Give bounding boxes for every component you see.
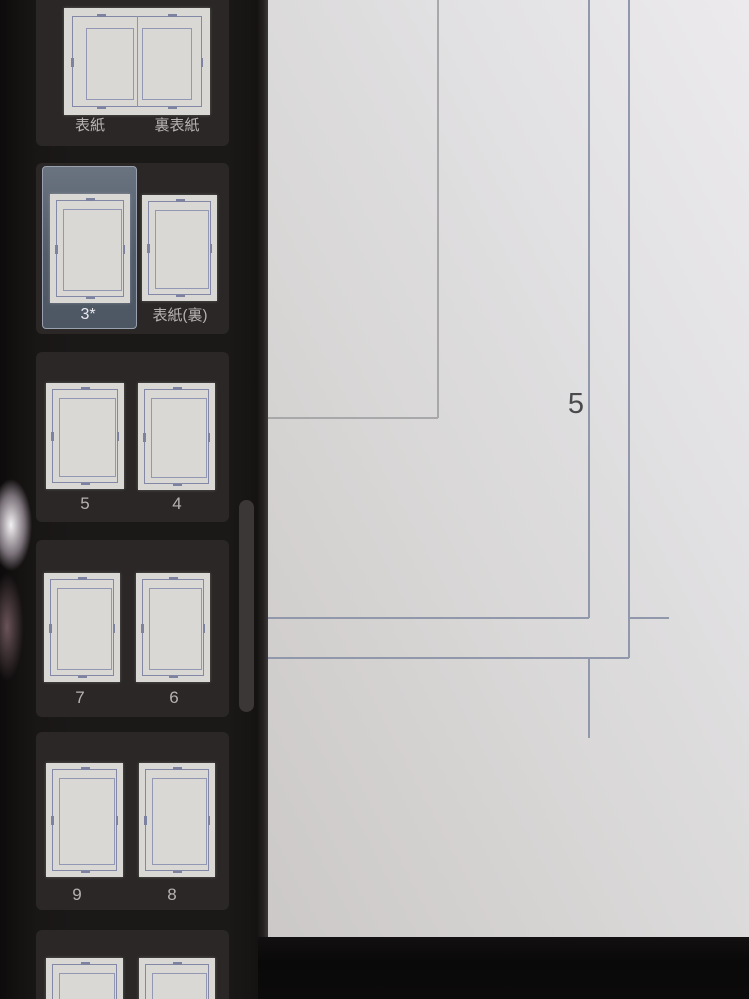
thumb-page-8[interactable]: [139, 763, 215, 877]
pages-panel: 表紙 裏表紙 3* 表紙(裏) 5 4: [0, 0, 258, 999]
thumb-page-9[interactable]: [46, 763, 123, 877]
page-label: 表紙: [45, 115, 135, 137]
page-number-text: 5: [554, 389, 584, 419]
margin-box-back-cover: [142, 28, 192, 100]
thumb-page-next-right[interactable]: [139, 958, 215, 999]
margin-box-front-cover: [86, 28, 134, 100]
page-edge-bottom: [268, 657, 629, 659]
page-label: 8: [127, 884, 217, 906]
guide-bottom-margin-extension: [629, 617, 669, 619]
page-label: 6: [129, 687, 219, 709]
page-label: 7: [35, 687, 125, 709]
guide-bottom-margin: [268, 617, 589, 619]
panel-canvas-divider: [258, 0, 268, 937]
margin-box: [59, 778, 115, 865]
margin-box: [59, 973, 115, 999]
app-screen: 5 表紙 裏表紙: [0, 0, 749, 999]
text-frame-bottom-edge: [268, 417, 438, 419]
margin-box: [59, 398, 116, 477]
text-frame-right-edge: [437, 0, 439, 418]
page-label: 5: [40, 493, 130, 515]
page-label: 裏表紙: [132, 115, 222, 137]
margin-box: [152, 973, 207, 999]
crop-tick: [97, 14, 106, 17]
page-label: 4: [132, 493, 222, 515]
page-label-selected: 3*: [43, 304, 133, 326]
thumb-page-4[interactable]: [138, 383, 215, 490]
thumb-page-next-left[interactable]: [46, 958, 123, 999]
thumb-page-5[interactable]: [46, 383, 124, 489]
margin-box: [149, 588, 202, 670]
canvas-area[interactable]: 5: [258, 0, 749, 937]
page-label: 9: [32, 884, 122, 906]
pages-panel-scrollbar[interactable]: [239, 500, 254, 712]
page-label: 表紙(裏): [135, 305, 225, 327]
thumb-page-6[interactable]: [136, 573, 210, 682]
guide-right-margin: [588, 0, 590, 618]
thumb-cover-spread[interactable]: [64, 8, 210, 115]
bottom-bar: [258, 937, 749, 999]
crop-tick: [168, 107, 177, 110]
crop-tick: [168, 14, 177, 17]
margin-box: [63, 209, 122, 291]
margin-box: [57, 588, 112, 670]
thumb-page-7[interactable]: [44, 573, 120, 682]
thumb-page-3[interactable]: [50, 194, 130, 303]
margin-box: [155, 210, 209, 289]
margin-box: [152, 778, 207, 865]
guide-right-margin-extension: [588, 658, 590, 738]
panel-left-bezel: [0, 0, 38, 999]
thumb-cover-inside[interactable]: [142, 195, 217, 301]
spread-center-divider: [137, 16, 138, 107]
crop-tick: [97, 107, 106, 110]
page-edge-right: [628, 0, 630, 658]
margin-box: [151, 398, 207, 478]
